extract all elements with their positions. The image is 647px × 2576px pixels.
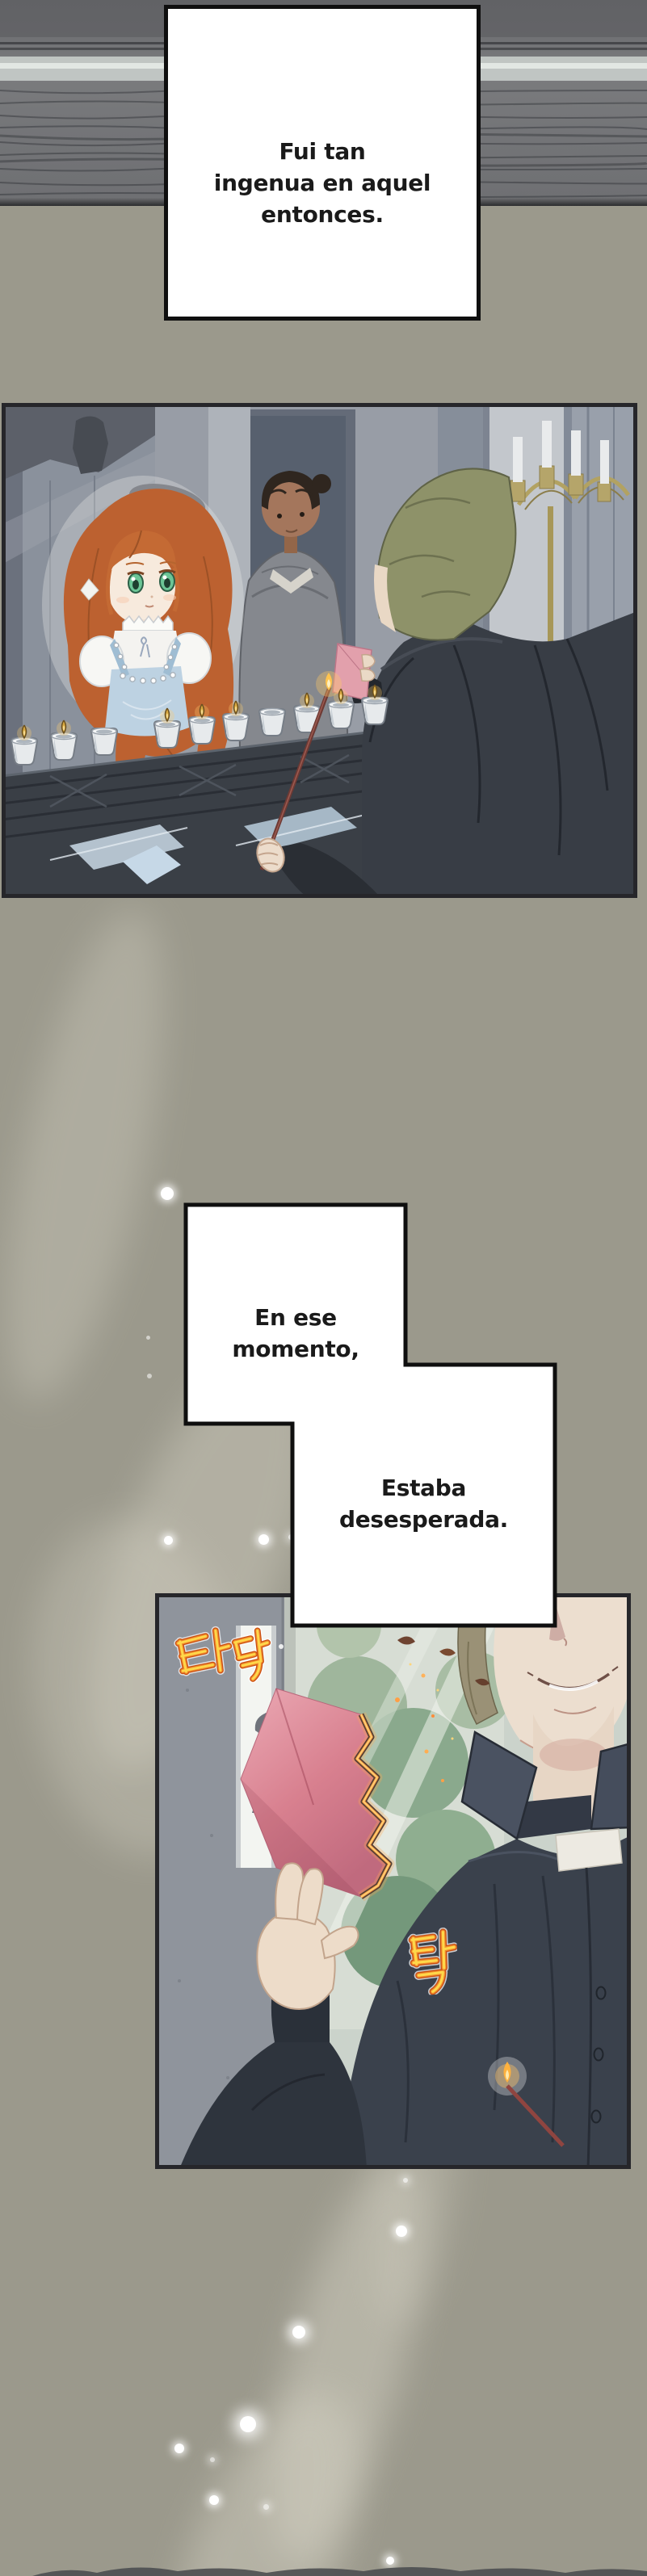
next-panel-edge	[0, 2561, 647, 2576]
webtoon-page: Fui tan ingenua en aquel entonces. En es…	[0, 0, 647, 2576]
narration-line: En ese	[254, 1302, 337, 1333]
sfx-glyph-art	[405, 1927, 460, 1996]
sparkle	[396, 2226, 407, 2237]
sparkle	[292, 2326, 305, 2339]
sparkle	[164, 1536, 173, 1545]
sparkle	[210, 2457, 215, 2462]
sparkle	[263, 2504, 269, 2510]
sparkle	[146, 1336, 150, 1340]
sparkle	[147, 1374, 152, 1378]
sparkle	[209, 2495, 219, 2505]
sparkle	[174, 2444, 184, 2453]
church-scene-panel	[2, 403, 637, 898]
sparkle	[403, 2178, 408, 2183]
narration-line: Fui tan	[279, 136, 365, 167]
sfx-snap: 탁	[405, 1927, 460, 1999]
narration-line: desesperada.	[339, 1504, 508, 1535]
narration-line: momento,	[232, 1333, 359, 1365]
narration-box-3: Estaba desesperada.	[292, 1365, 555, 1626]
narration-line: entonces.	[261, 199, 384, 230]
narration-line: ingenua en aquel	[214, 167, 431, 199]
sparkle	[240, 2416, 256, 2432]
sparkle	[279, 1644, 284, 1649]
smoke-wisp	[0, 897, 196, 1412]
narration-box-1: Fui tan ingenua en aquel entonces.	[164, 5, 481, 321]
narration-line: Estaba	[381, 1472, 466, 1504]
sparkle	[161, 1187, 174, 1200]
